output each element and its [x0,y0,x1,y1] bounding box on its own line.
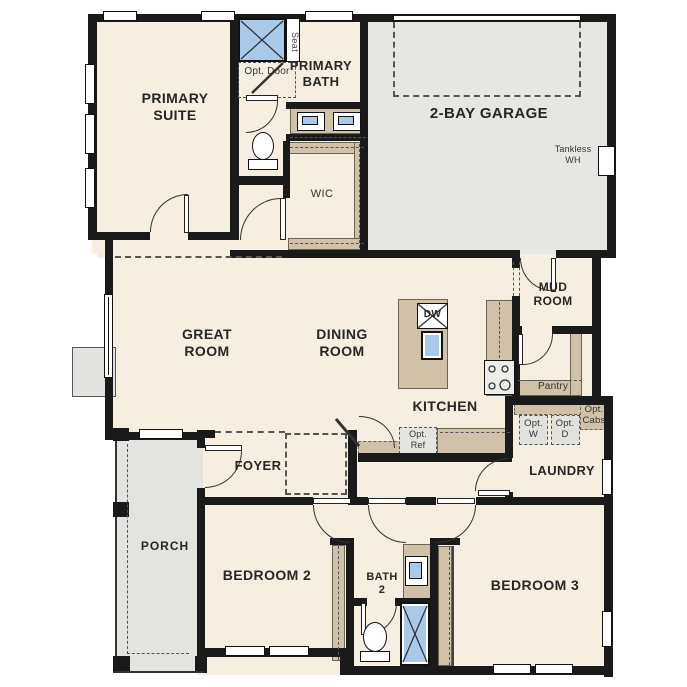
label-primary-suite: PRIMARY SUITE [125,90,225,124]
wic-shelf-bottom [288,238,366,250]
primary-sink-left [297,112,325,131]
label-bedroom-3: BEDROOM 3 [484,577,586,594]
porch-post-1 [113,428,129,441]
wall-greatroom-left-b [105,376,113,440]
label-foyer: FOYER [228,458,288,474]
label-primary-bath: PRIMARY BATH [282,58,360,89]
island-sink-basin [425,335,439,356]
porch-edge-bottom [113,671,203,673]
window-top-3 [305,11,353,21]
laundry-counter-strip [514,404,582,415]
label-wic: WIC [300,188,344,201]
wall-wic-left [283,141,290,198]
bath2-door-leaf [368,498,406,504]
label-pantry: Pantry [531,381,575,393]
kitchen-counter-bottom-line [440,432,510,433]
wall-hall-bottom-a [197,497,313,505]
bed3-door-leaf [437,498,475,504]
wall-greatroom-left-a [105,240,113,298]
primary-toilet-bowl [252,132,274,160]
foyer-optional-area [285,433,347,495]
label-dw: DW [417,309,448,321]
mud-kitchen-opening [513,262,520,296]
primary-sink-right-basin [338,116,354,125]
label-opt-ref: Opt. Ref [401,429,435,451]
bed3-closet-rod [449,547,450,665]
shower-pan [238,18,286,62]
wall-laundry-left-a [505,396,513,458]
label-opt-washer: Opt. W [520,418,547,441]
bed2-closet-rod [338,546,339,660]
label-mud-room: MUD ROOM [521,280,585,309]
label-opt-door: Opt. Door [242,66,292,78]
wall-porch-right-b [197,488,205,657]
slider-mullion [108,297,109,375]
tankless-wh-box [598,146,615,176]
cooktop [484,360,515,395]
wall-hall-bottom-d [476,497,606,505]
wall-mud-bottom-b [552,326,592,334]
window-bed3-2 [535,664,573,674]
vanity-knee-line [290,137,366,138]
window-greatroom-bottom [139,429,183,439]
wall-mud-pantry-right [592,258,601,404]
label-tankless-wh: Tankless WH [550,144,596,166]
bath2-toilet-tank [360,651,390,662]
window-bed3-right [602,611,612,647]
label-garage: 2-BAY GARAGE [428,105,550,123]
bath2-toilet-bowl [363,622,387,652]
wall-hall-bottom-b [351,497,368,505]
greatroom-slider-door [104,294,113,378]
bath2-sink [405,556,428,586]
bed2-door-leaf [313,498,351,504]
wall-toilet-room-bottom [238,176,286,185]
primary-toilet-tank [248,159,278,170]
greatroom-ceiling-break [115,256,282,258]
primary-sink-right [333,112,361,131]
kitchen-counter-line [499,302,500,358]
wall-dining-foyer [348,430,357,505]
wall-suite-bottom-a [88,232,150,240]
label-porch: PORCH [136,539,194,553]
label-bath-2: BATH 2 [363,571,401,597]
foyer-dining-opening [215,431,285,433]
floorplan-canvas: PRIMARY SUITE PRIMARY BATH Seat Opt. Doo… [0,0,687,687]
island-sink [421,331,443,360]
window-bed2-1 [225,646,265,656]
label-great-room: GREAT ROOM [163,326,251,360]
wic-rod-top [290,147,364,148]
wall-hall-top [358,453,512,462]
garage-door-dashed-outline [393,22,581,97]
window-left-2 [85,114,95,154]
label-opt-cabs: Opt. Cabs [581,404,607,427]
label-kitchen: KITCHEN [404,398,486,415]
primary-sink-left-basin [302,116,318,125]
label-dining-room: DINING ROOM [298,326,386,360]
label-laundry: LAUNDRY [518,463,606,479]
wall-suite-bottom-b [188,232,232,240]
wall-mud-bottom-a [512,326,522,334]
window-bed3-1 [493,664,531,674]
wall-porch-right-a [197,435,205,448]
wall-garage-right [607,14,616,258]
wic-rod-bottom [290,243,364,244]
garage-door-header [393,15,581,21]
bed3-closet-edge [452,546,454,666]
wic-rod-right [359,144,360,248]
window-left-1 [85,64,95,104]
window-left-3 [85,168,95,208]
wall-vanity-back [286,102,366,109]
window-top-2 [201,11,235,21]
window-top-1 [103,11,137,21]
wall-garage-bottom-a [360,250,520,258]
label-bedroom-2: BEDROOM 2 [217,567,317,584]
label-opt-dryer: Opt. D [551,418,579,441]
window-bed2-2 [269,646,309,656]
bath2-sink-basin [409,562,422,579]
label-seat: Seat [286,22,300,62]
bath2-tub [400,602,430,666]
wall-hall-bottom-c [406,497,436,505]
